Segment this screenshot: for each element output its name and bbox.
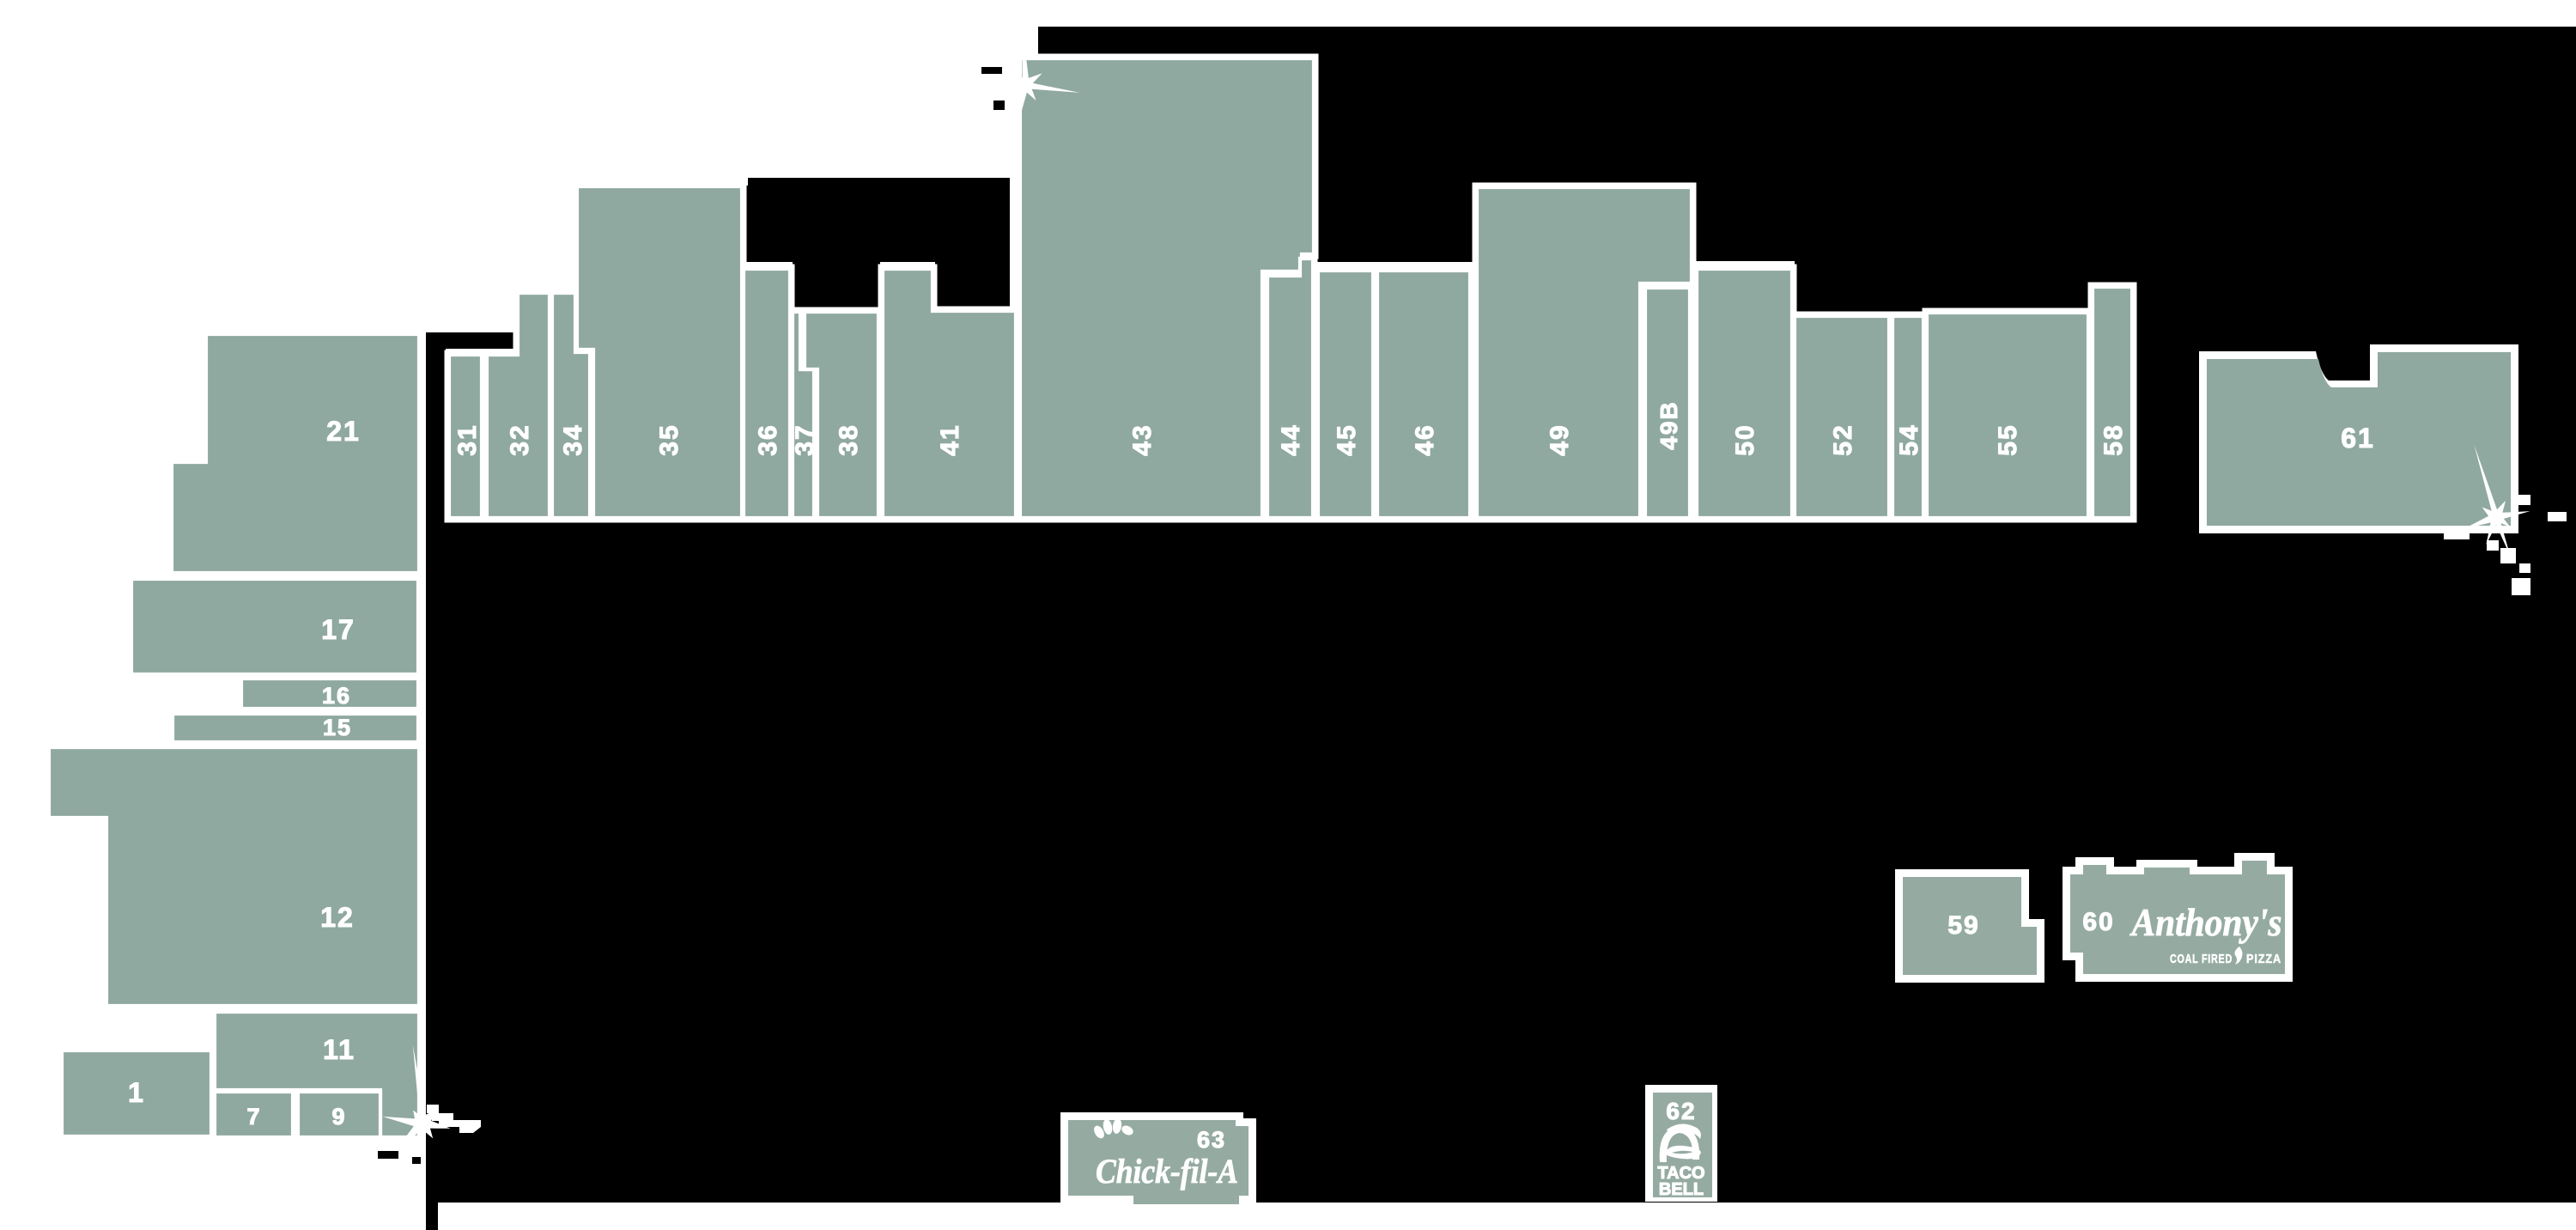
svg-text:35: 35: [655, 423, 683, 455]
svg-text:55: 55: [1994, 423, 2022, 455]
svg-text:16: 16: [322, 683, 351, 709]
svg-text:1: 1: [128, 1077, 145, 1108]
svg-text:32: 32: [506, 423, 534, 455]
svg-text:46: 46: [1411, 423, 1439, 455]
svg-text:54: 54: [1895, 423, 1923, 455]
svg-text:52: 52: [1829, 423, 1857, 455]
svg-text:43: 43: [1128, 423, 1157, 455]
svg-text:38: 38: [835, 423, 863, 455]
svg-text:BELL: BELL: [1659, 1180, 1704, 1199]
svg-text:45: 45: [1333, 423, 1361, 455]
svg-text:COAL FIRED: COAL FIRED: [2170, 952, 2233, 966]
svg-text:41: 41: [936, 423, 964, 455]
svg-text:21: 21: [326, 416, 361, 447]
svg-text:PIZZA: PIZZA: [2246, 952, 2281, 966]
svg-text:12: 12: [320, 902, 355, 933]
svg-text:62: 62: [1666, 1098, 1696, 1124]
svg-text:60: 60: [2082, 908, 2114, 936]
svg-text:Anthony's: Anthony's: [2129, 900, 2282, 944]
svg-text:63: 63: [1197, 1127, 1226, 1153]
svg-text:37: 37: [791, 423, 819, 455]
svg-text:9: 9: [331, 1104, 346, 1130]
svg-text:61: 61: [2341, 423, 2375, 454]
svg-text:49: 49: [1546, 423, 1574, 455]
svg-text:59: 59: [1947, 911, 1979, 940]
svg-text:15: 15: [323, 715, 352, 740]
svg-text:17: 17: [321, 614, 355, 645]
svg-text:Chick-fil-A: Chick-fil-A: [1096, 1152, 1238, 1190]
svg-text:58: 58: [2099, 423, 2128, 455]
svg-text:7: 7: [246, 1104, 261, 1130]
svg-text:50: 50: [1731, 423, 1759, 455]
svg-text:11: 11: [323, 1034, 355, 1065]
svg-text:36: 36: [754, 423, 782, 455]
svg-text:34: 34: [559, 423, 587, 455]
svg-text:44: 44: [1277, 423, 1305, 455]
svg-text:31: 31: [453, 423, 482, 455]
svg-text:49B: 49B: [1656, 400, 1682, 449]
